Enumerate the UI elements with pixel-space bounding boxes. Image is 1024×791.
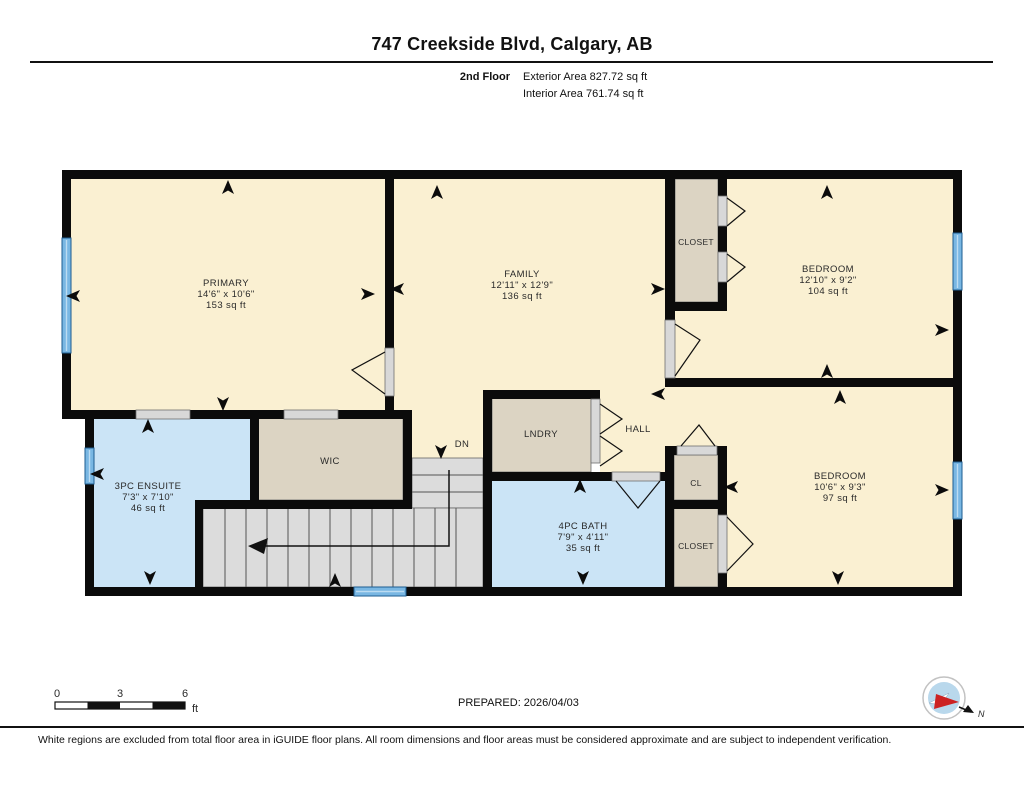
primary-dims: 14'6" x 10'6" xyxy=(197,289,254,300)
scale-tick-0: 0 xyxy=(54,688,60,700)
bifold-door-leaf xyxy=(718,196,727,226)
disclaimer-text: White regions are excluded from total fl… xyxy=(38,734,891,746)
door-leaf xyxy=(677,446,717,455)
closet-bottom-label: CLOSET xyxy=(678,541,714,551)
scale-bar: 0 3 6 ft xyxy=(54,688,198,715)
bedroom-top-dims: 12'10" x 9'2" xyxy=(799,275,856,286)
bath-dims: 7'9" x 4'11" xyxy=(558,532,609,543)
bifold-door-leaf xyxy=(591,399,600,463)
primary-name: PRIMARY xyxy=(203,278,249,289)
floor-plan-drawing: PRIMARY 14'6" x 10'6" 153 sq ft FAMILY 1… xyxy=(0,0,1024,791)
stairs-down-label: DN xyxy=(455,439,470,450)
scale-unit-label: ft xyxy=(192,703,198,715)
family-dims: 12'11" x 12'9" xyxy=(491,280,553,291)
footer-divider xyxy=(0,726,1024,728)
door-leaf xyxy=(665,320,675,378)
door-leaf xyxy=(612,472,660,481)
bedroom-bottom-area: 97 sq ft xyxy=(823,493,857,504)
hall-fill-2 xyxy=(665,387,727,446)
compass-icon: N xyxy=(923,677,985,719)
door-leaf xyxy=(385,348,394,396)
bifold-door-leaf xyxy=(718,252,727,282)
ensuite-name: 3PC ENSUITE xyxy=(115,481,182,492)
bedroom-top-name: BEDROOM xyxy=(802,264,854,275)
stairs-upper-fill xyxy=(412,458,483,508)
family-area: 136 sq ft xyxy=(502,291,542,302)
wic-label: WIC xyxy=(320,456,340,467)
ensuite-area: 46 sq ft xyxy=(131,503,165,514)
floor-plan-page: 747 Creekside Blvd, Calgary, AB 2nd Floo… xyxy=(0,0,1024,791)
ensuite-dims: 7'3" x 7'10" xyxy=(122,492,174,503)
laundry-label: LNDRY xyxy=(524,429,558,440)
bedroom-passage-fill xyxy=(675,310,727,378)
primary-area: 153 sq ft xyxy=(206,300,246,311)
family-name: FAMILY xyxy=(504,269,540,280)
stairs-lower-fill xyxy=(203,508,483,587)
scale-tick-6: 6 xyxy=(182,688,188,700)
bath-area: 35 sq ft xyxy=(566,543,600,554)
bedroom-top-area: 104 sq ft xyxy=(808,286,848,297)
hall-label: HALL xyxy=(625,424,650,435)
bedroom-bottom-name: BEDROOM xyxy=(814,471,866,482)
closet-small-label: CL xyxy=(690,478,701,488)
bifold-door-leaf xyxy=(718,515,727,573)
bedroom-bottom-dims: 10'6" x 9'3" xyxy=(814,482,866,493)
door-opening xyxy=(136,410,190,419)
compass-north-label: N xyxy=(978,709,985,719)
door-opening xyxy=(284,410,338,419)
bath-name: 4PC BATH xyxy=(559,521,608,532)
scale-tick-3: 3 xyxy=(117,688,123,700)
closet-top-label: CLOSET xyxy=(678,237,714,247)
prepared-date: PREPARED: 2026/04/03 xyxy=(458,697,579,709)
